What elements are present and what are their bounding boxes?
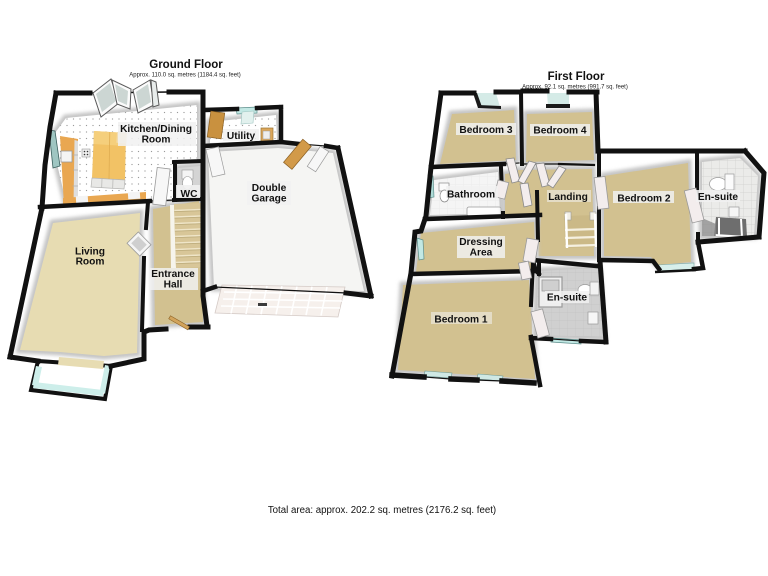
svg-text:Approx. 92.1 sq. metres (991.7: Approx. 92.1 sq. metres (991.7 sq. feet) [522,85,628,91]
svg-text:Garage: Garage [251,194,286,205]
svg-text:Hall: Hall [164,280,183,291]
svg-text:En-suite: En-suite [698,192,739,203]
svg-text:Double: Double [252,183,287,194]
svg-text:Bedroom 4: Bedroom 4 [533,126,587,137]
svg-text:Room: Room [76,257,105,268]
svg-text:WC: WC [181,189,199,200]
svg-text:Dressing: Dressing [459,237,503,248]
svg-text:Entrance: Entrance [151,269,195,280]
svg-text:Utility: Utility [227,131,256,142]
svg-text:Ground Floor: Ground Floor [149,59,223,71]
svg-text:Total area: approx. 202.2 sq.: Total area: approx. 202.2 sq. metres (21… [268,505,496,516]
svg-text:Area: Area [470,248,493,259]
svg-text:First Floor: First Floor [548,71,605,83]
svg-text:En-suite: En-suite [547,293,588,304]
svg-text:Bedroom 1: Bedroom 1 [434,315,488,326]
svg-text:Kitchen/Dining: Kitchen/Dining [120,124,192,135]
svg-text:Bedroom 3: Bedroom 3 [459,125,513,136]
svg-text:Approx. 110.0 sq. metres (1184: Approx. 110.0 sq. metres (1184.4 sq. fee… [129,73,241,79]
svg-text:Landing: Landing [548,192,588,203]
svg-text:Bathroom: Bathroom [447,190,495,201]
svg-text:Bedroom 2: Bedroom 2 [617,194,671,205]
svg-text:Room: Room [142,135,171,146]
